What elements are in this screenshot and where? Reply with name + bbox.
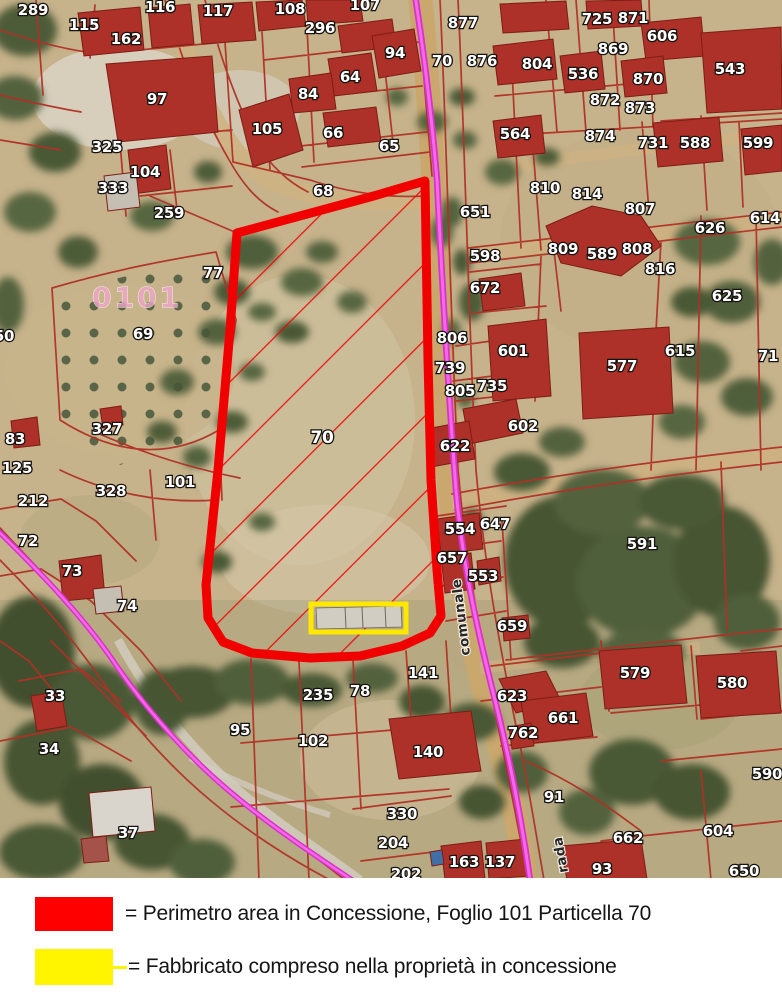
legend-connector-line bbox=[113, 966, 127, 969]
parcel-label-807: 807 bbox=[625, 200, 655, 218]
parcel-label-579: 579 bbox=[620, 664, 650, 682]
parcel-label-66: 66 bbox=[323, 124, 343, 142]
parcel-label-101: 101 bbox=[165, 473, 195, 491]
cadastral-map-document: 0101 28911516211611797325104333259108296… bbox=[0, 0, 782, 1004]
parcel-label-614: 614 bbox=[750, 209, 780, 227]
parcel-label-69: 69 bbox=[133, 325, 153, 343]
legend-swatch-yellow bbox=[35, 949, 113, 985]
parcel-label-83: 83 bbox=[5, 430, 25, 448]
parcel-label-602: 602 bbox=[508, 417, 538, 435]
parcel-label-97: 97 bbox=[147, 90, 167, 108]
parcel-label-870: 870 bbox=[633, 70, 663, 88]
legend-label-building: = Fabbricato compreso nella proprietà in… bbox=[128, 955, 617, 979]
parcel-label-626: 626 bbox=[695, 219, 725, 237]
concession-perimeter bbox=[206, 181, 441, 658]
parcel-label-33: 33 bbox=[45, 687, 65, 705]
parcel-label-591: 591 bbox=[627, 535, 657, 553]
parcel-label-553: 553 bbox=[468, 567, 498, 585]
parcel-label-162: 162 bbox=[111, 30, 141, 48]
parcel-label-650: 650 bbox=[729, 862, 759, 878]
parcel-label-37: 37 bbox=[118, 824, 138, 842]
parcel-label-604: 604 bbox=[703, 822, 733, 840]
parcel-label-115: 115 bbox=[69, 16, 99, 34]
parcel-label-289: 289 bbox=[18, 1, 48, 19]
parcel-label-328: 328 bbox=[96, 482, 126, 500]
parcel-label-577: 577 bbox=[607, 357, 637, 375]
parcel-label-590: 590 bbox=[752, 765, 782, 783]
parcel-label-163: 163 bbox=[449, 853, 479, 871]
parcel-label-71: 71 bbox=[758, 347, 778, 365]
parcel-label-77: 77 bbox=[203, 264, 223, 282]
parcel-label-327: 327 bbox=[92, 420, 122, 438]
parcel-label-91: 91 bbox=[544, 788, 564, 806]
parcel-label-762: 762 bbox=[508, 724, 538, 742]
parcel-label-814: 814 bbox=[572, 185, 602, 203]
parcel-label-589: 589 bbox=[587, 245, 617, 263]
parcel-label-125: 125 bbox=[2, 459, 32, 477]
parcel-label-65: 65 bbox=[379, 137, 399, 155]
parcel-label-564: 564 bbox=[500, 125, 530, 143]
parcel-label-623: 623 bbox=[497, 687, 527, 705]
parcel-label-599: 599 bbox=[743, 134, 773, 152]
parcel-label-536: 536 bbox=[568, 65, 598, 83]
parcel-label-805: 805 bbox=[445, 382, 475, 400]
cadastral-aerial-map-svg: 0101 28911516211611797325104333259108296… bbox=[0, 0, 782, 878]
parcel-label-64: 64 bbox=[340, 68, 360, 86]
parcel-label-871: 871 bbox=[618, 9, 648, 27]
legend-row-building: = Fabbricato compreso nella proprietà in… bbox=[35, 949, 617, 985]
parcel-label-102: 102 bbox=[298, 732, 328, 750]
parcel-label-73: 73 bbox=[62, 562, 82, 580]
parcel-label-598: 598 bbox=[470, 247, 500, 265]
parcel-label-873: 873 bbox=[625, 99, 655, 117]
parcel-label-809: 809 bbox=[548, 240, 578, 258]
parcel-label-657: 657 bbox=[437, 549, 467, 567]
parcel-label-588: 588 bbox=[680, 134, 710, 152]
parcel-label-872: 872 bbox=[590, 91, 620, 109]
parcel-label-672: 672 bbox=[470, 279, 500, 297]
parcel-label-202: 202 bbox=[391, 865, 421, 878]
parcel-label-662: 662 bbox=[613, 829, 643, 847]
parcel-label-204: 204 bbox=[378, 834, 408, 852]
parcel-label-810: 810 bbox=[530, 179, 560, 197]
legend-row-perimeter: = Perimetro area in Concessione, Foglio … bbox=[35, 897, 651, 931]
parcel-label-876: 876 bbox=[467, 52, 497, 70]
parcel-label-116: 116 bbox=[145, 0, 175, 16]
parcel-label-622: 622 bbox=[440, 437, 470, 455]
parcel-label-235: 235 bbox=[303, 686, 333, 704]
parcel-label-72: 72 bbox=[18, 532, 38, 550]
parcel-label-117: 117 bbox=[203, 2, 233, 20]
parcel-label-330: 330 bbox=[387, 805, 417, 823]
parcel-label-68: 68 bbox=[313, 182, 333, 200]
parcel-label-259: 259 bbox=[154, 204, 184, 222]
parcel-label-94: 94 bbox=[385, 44, 405, 62]
parcel-label-95: 95 bbox=[230, 721, 250, 739]
parcel-label-70: 70 bbox=[310, 428, 334, 448]
parcel-label-554: 554 bbox=[445, 520, 475, 538]
parcel-label-78: 78 bbox=[350, 682, 370, 700]
parcel-label-580: 580 bbox=[717, 674, 747, 692]
parcel-label-50: 50 bbox=[0, 327, 14, 345]
aerial-map: 0101 28911516211611797325104333259108296… bbox=[0, 0, 782, 878]
parcel-label-93: 93 bbox=[592, 860, 612, 878]
parcel-label-806: 806 bbox=[437, 329, 467, 347]
parcel-label-34: 34 bbox=[39, 740, 59, 758]
parcel-label-615: 615 bbox=[665, 342, 695, 360]
parcel-label-739: 739 bbox=[435, 359, 465, 377]
parcel-label-659: 659 bbox=[497, 617, 527, 635]
parcel-label-874: 874 bbox=[585, 127, 615, 145]
parcel-label-606: 606 bbox=[647, 27, 677, 45]
parcel-label-543: 543 bbox=[715, 60, 745, 78]
parcel-label-74: 74 bbox=[117, 597, 137, 615]
parcel-label-869: 869 bbox=[598, 40, 628, 58]
parcel-label-296: 296 bbox=[305, 19, 335, 37]
parcel-label-651: 651 bbox=[460, 203, 490, 221]
parcel-label-105: 105 bbox=[252, 120, 282, 138]
parcel-label-141: 141 bbox=[408, 664, 438, 682]
parcel-label-108: 108 bbox=[275, 0, 305, 18]
parcel-label-70: 70 bbox=[432, 52, 452, 70]
parcel-label-804: 804 bbox=[522, 55, 552, 73]
parcel-label-104: 104 bbox=[130, 163, 160, 181]
parcel-label-647: 647 bbox=[480, 515, 510, 533]
parcel-label-625: 625 bbox=[712, 287, 742, 305]
parcel-label-140: 140 bbox=[413, 743, 443, 761]
parcel-label-808: 808 bbox=[622, 240, 652, 258]
parcel-label-212: 212 bbox=[18, 492, 48, 510]
parcel-label-816: 816 bbox=[645, 260, 675, 278]
parcel-label-325: 325 bbox=[92, 138, 122, 156]
map-sheet-label: 0101 bbox=[92, 281, 182, 314]
parcel-label-725: 725 bbox=[582, 10, 612, 28]
parcel-label-735: 735 bbox=[477, 377, 507, 395]
legend-label-perimeter: = Perimetro area in Concessione, Foglio … bbox=[125, 902, 651, 926]
legend-swatch-red bbox=[35, 897, 113, 931]
parcel-label-661: 661 bbox=[548, 709, 578, 727]
parcel-label-84: 84 bbox=[298, 85, 318, 103]
parcel-label-137: 137 bbox=[485, 853, 515, 871]
parcel-label-601: 601 bbox=[498, 342, 528, 360]
parcel-label-333: 333 bbox=[98, 179, 128, 197]
parcel-label-877: 877 bbox=[448, 14, 478, 32]
parcel-label-107: 107 bbox=[350, 0, 380, 14]
parcel-label-731: 731 bbox=[638, 134, 668, 152]
